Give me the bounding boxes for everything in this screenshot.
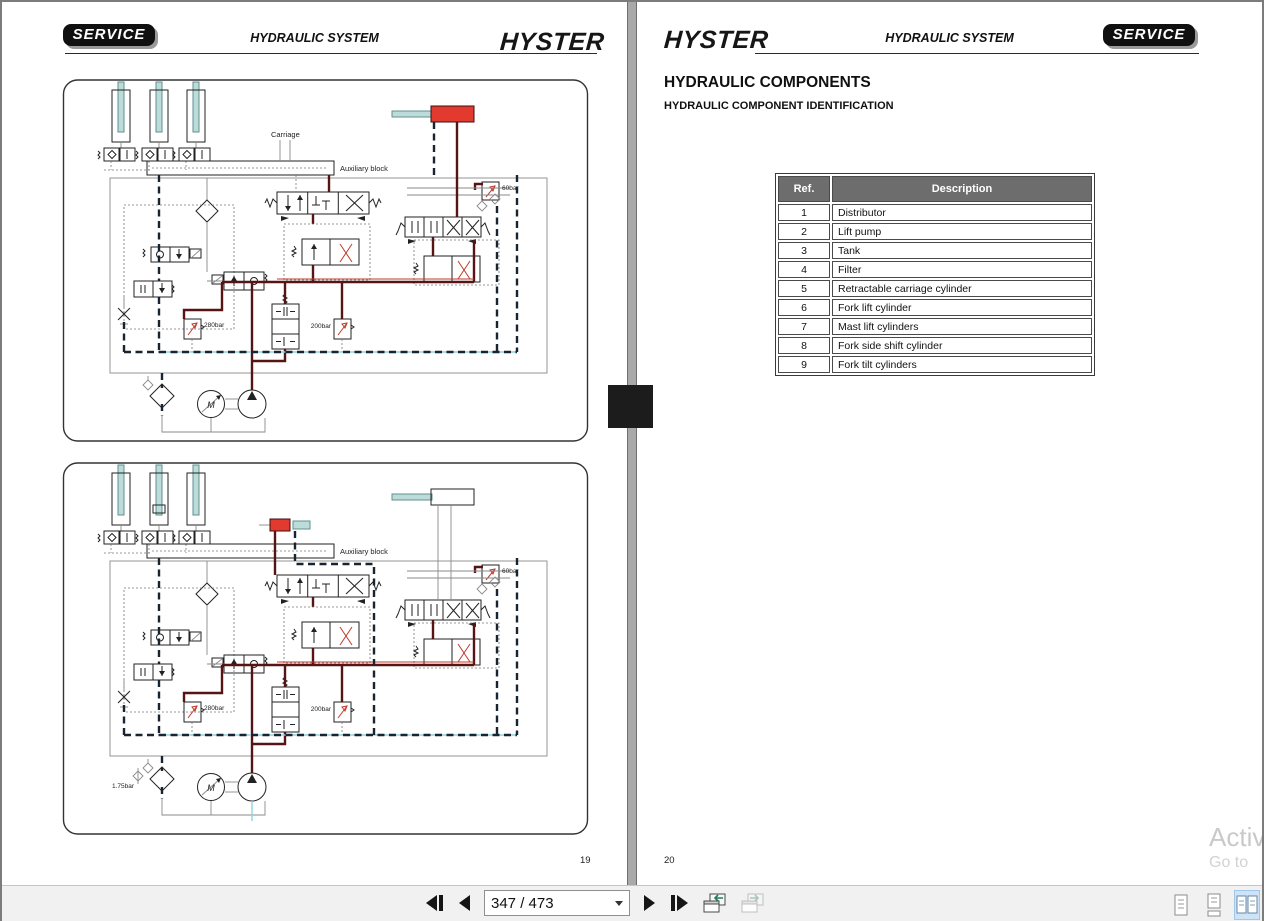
table-row: 6Fork lift cylinder (778, 299, 1092, 316)
table-row: 5Retractable carriage cylinder (778, 280, 1092, 297)
svg-text:1.75bar: 1.75bar (112, 783, 135, 790)
description-cell: Retractable carriage cylinder (832, 280, 1092, 297)
first-page-button[interactable] (424, 893, 446, 913)
two-page-icon (1236, 893, 1258, 917)
page-indicator: 347 / 473 (491, 895, 554, 912)
table-header-row: Ref. Description (778, 176, 1092, 202)
ref-cell: 5 (778, 280, 830, 297)
svg-text:200bar: 200bar (311, 323, 332, 330)
watermark-line1: Activ (1209, 822, 1264, 852)
description-cell: Fork lift cylinder (832, 299, 1092, 316)
next-page-button[interactable] (642, 893, 656, 913)
table-row: 4Filter (778, 261, 1092, 278)
section-subheading: HYDRAULIC COMPONENT IDENTIFICATION (664, 100, 894, 112)
table-row: 2Lift pump (778, 223, 1092, 240)
thumb-index-marker (608, 385, 653, 428)
svg-text:Carriage: Carriage (271, 130, 300, 139)
section-heading: HYDRAULIC COMPONENTS (664, 74, 871, 92)
previous-page-button[interactable] (458, 893, 472, 913)
table-row: 1Distributor (778, 204, 1092, 221)
col-header-description: Description (832, 176, 1092, 202)
table-row: 8Fork side shift cylinder (778, 337, 1092, 354)
page-number-right: 20 (664, 855, 675, 866)
description-cell: Mast lift cylinders (832, 318, 1092, 335)
svg-text:M: M (207, 783, 215, 793)
description-cell: Tank (832, 242, 1092, 259)
page-number-combo[interactable]: 347 / 473 (484, 890, 630, 916)
components-table: Ref. Description 1Distributor2Lift pump3… (775, 173, 1095, 376)
svg-text:60bar: 60bar (502, 185, 519, 192)
activation-watermark: Activ Go to (1209, 822, 1264, 874)
description-cell: Filter (832, 261, 1092, 278)
ref-cell: 2 (778, 223, 830, 240)
svg-text:M: M (207, 400, 215, 410)
col-header-ref: Ref. (778, 176, 830, 202)
svg-text:60bar: 60bar (502, 568, 519, 575)
ref-cell: 6 (778, 299, 830, 316)
next-view-button[interactable] (740, 892, 766, 914)
hydraulic-schematic-top: Carriage Auxiliary block 60bar 280bar 20… (62, 78, 589, 444)
hydraulic-schematic-bottom: Auxiliary block 60bar 280bar 200bar 1.75… (62, 461, 589, 837)
table-row: 9Fork tilt cylinders (778, 356, 1092, 373)
page-divider (627, 2, 637, 885)
view-continuous-button[interactable] (1201, 890, 1227, 920)
previous-page-icon (458, 893, 472, 913)
ref-cell: 9 (778, 356, 830, 373)
svg-text:200bar: 200bar (311, 706, 332, 713)
description-cell: Distributor (832, 204, 1092, 221)
watermark-line2: Go to (1209, 852, 1264, 874)
previous-view-button[interactable] (702, 892, 728, 914)
description-cell: Fork side shift cylinder (832, 337, 1092, 354)
svg-text:280bar: 280bar (204, 705, 225, 712)
header-rule-right (755, 53, 1199, 54)
last-page-button[interactable] (668, 893, 690, 913)
table-row: 7Mast lift cylinders (778, 318, 1092, 335)
svg-text:280bar: 280bar (204, 322, 225, 329)
ref-cell: 7 (778, 318, 830, 335)
view-single-page-button[interactable] (1168, 890, 1194, 920)
next-page-icon (642, 893, 656, 913)
first-page-icon (424, 893, 446, 913)
viewer-toolbar: 347 / 473 (0, 885, 1264, 921)
continuous-icon (1205, 893, 1223, 917)
ref-cell: 4 (778, 261, 830, 278)
combo-dropdown-icon[interactable] (615, 901, 623, 906)
last-page-icon (668, 893, 690, 913)
page-number-left: 19 (580, 855, 591, 866)
header-rule-left (65, 53, 597, 54)
description-cell: Fork tilt cylinders (832, 356, 1092, 373)
service-badge-right: SERVICE (1103, 24, 1195, 46)
previous-view-icon (702, 892, 728, 914)
pdf-page-right (637, 2, 1262, 885)
svg-text:Auxiliary block: Auxiliary block (340, 547, 388, 556)
svg-text:Auxiliary block: Auxiliary block (340, 164, 388, 173)
table-row: 3Tank (778, 242, 1092, 259)
single-page-icon (1172, 893, 1190, 917)
ref-cell: 8 (778, 337, 830, 354)
view-two-page-button[interactable] (1234, 890, 1260, 920)
ref-cell: 3 (778, 242, 830, 259)
next-view-icon (740, 892, 766, 914)
components-table-body: 1Distributor2Lift pump3Tank4Filter5Retra… (778, 204, 1092, 373)
ref-cell: 1 (778, 204, 830, 221)
description-cell: Lift pump (832, 223, 1092, 240)
